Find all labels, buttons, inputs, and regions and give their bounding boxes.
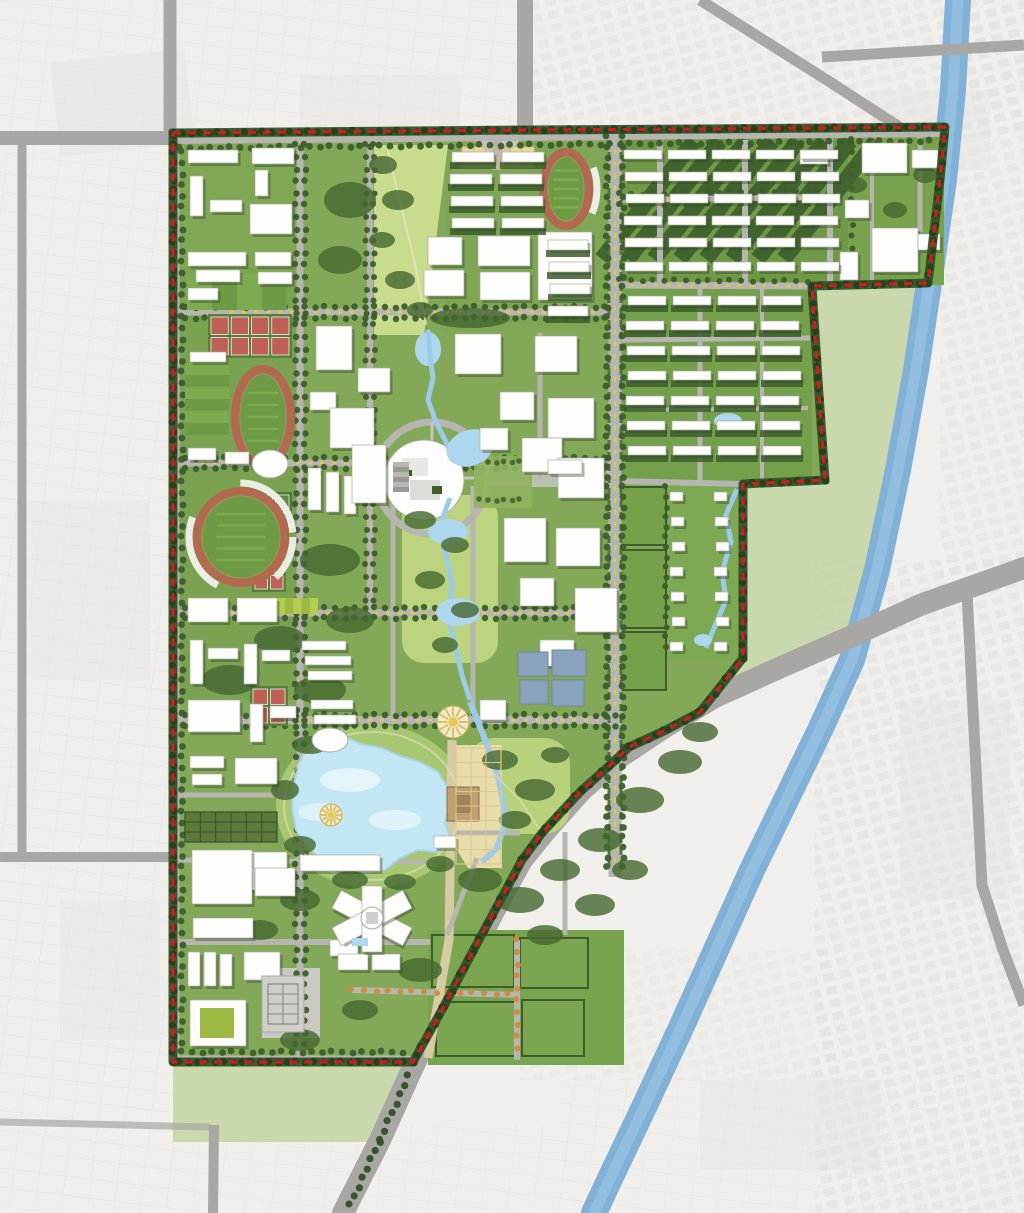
campus-master-plan-map: [0, 0, 1024, 1213]
master-plan-svg: [0, 0, 1024, 1213]
plan-root: [0, 0, 1024, 1213]
